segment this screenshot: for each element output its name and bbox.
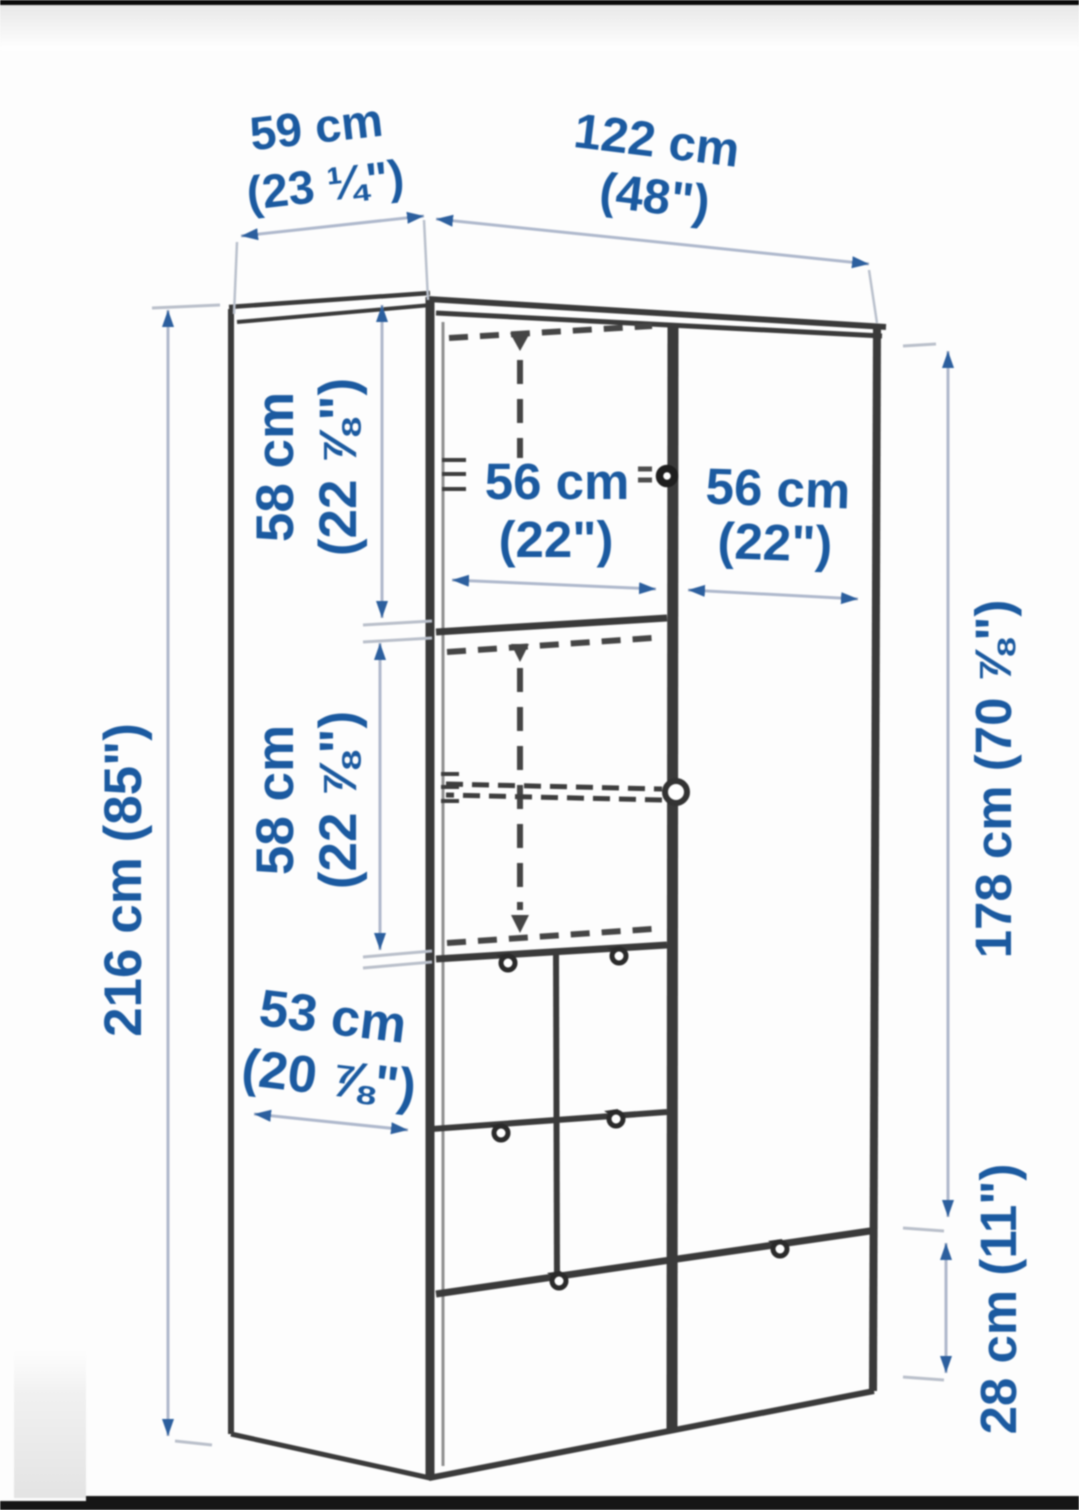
svg-text:(22 ⅞"): (22 ⅞") <box>309 378 368 556</box>
svg-text:56 cm: 56 cm <box>485 453 630 510</box>
svg-text:216 cm (85"): 216 cm (85") <box>94 723 153 1037</box>
svg-text:58 cm: 58 cm <box>246 725 305 875</box>
svg-text:(22"): (22") <box>717 512 834 573</box>
svg-text:56 cm: 56 cm <box>705 457 852 519</box>
svg-text:(22"): (22") <box>499 511 614 568</box>
svg-text:178 cm (70 ⅞"): 178 cm (70 ⅞") <box>965 600 1022 959</box>
svg-text:58 cm: 58 cm <box>246 392 305 542</box>
svg-text:28 cm (11"): 28 cm (11") <box>970 1164 1027 1435</box>
svg-text:(22 ⅞"): (22 ⅞") <box>309 711 368 889</box>
